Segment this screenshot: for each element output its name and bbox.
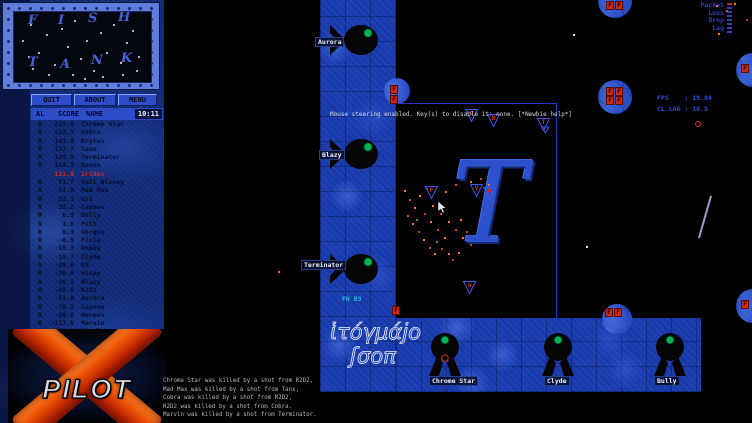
spark-dot xyxy=(404,190,406,192)
fish-base-clyde xyxy=(540,332,576,376)
spark-dot xyxy=(436,241,438,243)
packet-meter-gauge xyxy=(727,3,732,35)
kill-message: R2D2 was killed by a shot from Cobra. xyxy=(163,403,317,412)
enemy-ship: O xyxy=(482,186,497,201)
spark-dot xyxy=(716,5,718,7)
fuel-cell: F xyxy=(741,64,749,73)
spark-dot xyxy=(412,223,414,225)
enemy-ship-tag: n xyxy=(462,282,477,289)
fuel-cell: F xyxy=(390,95,398,104)
spark-dot xyxy=(414,207,416,209)
spark-dot xyxy=(586,246,588,248)
fuel-cell: F xyxy=(615,96,623,105)
spark-dot xyxy=(441,248,443,250)
spark-dot xyxy=(423,239,425,241)
spark-dot xyxy=(448,221,450,223)
spark-dot xyxy=(409,199,411,201)
fuel-cell: F xyxy=(741,300,749,309)
spark-dot xyxy=(424,213,426,215)
spark-dot xyxy=(430,221,432,223)
fuel-cell: F xyxy=(606,1,614,10)
spark-dot xyxy=(455,184,457,186)
red-ring-marker xyxy=(695,121,701,127)
decorative-script-line2: ʃσοπ xyxy=(350,344,396,368)
spark-dot xyxy=(470,244,472,246)
player-name-label: Blazy xyxy=(319,150,345,160)
xpilot-game-screen: FISHTANK QUIT ABOUT MENU AL SCORE NAME 1… xyxy=(0,0,752,423)
fuel-cell: F xyxy=(606,96,614,105)
spark-dot xyxy=(432,205,434,207)
spark-dot xyxy=(718,33,720,35)
fuel-cell: F xyxy=(606,87,614,96)
fuel-cell: F xyxy=(605,308,613,317)
spark-dot xyxy=(416,219,418,221)
map-letter-t: T xyxy=(452,148,527,260)
fuel-cell: F xyxy=(390,85,398,94)
kill-message-log: Chrome Star was killed by a shot from R2… xyxy=(163,377,317,420)
spark-dot xyxy=(445,191,447,193)
spark-dot xyxy=(444,237,446,239)
enemy-ship-tag: T xyxy=(536,119,551,126)
spark-dot xyxy=(573,34,575,36)
fuel-cell: F xyxy=(614,308,622,317)
enemy-ship-tag: O xyxy=(482,188,497,195)
player-name-label: Terminator xyxy=(301,260,346,270)
player-name-label: Chrome Star xyxy=(429,376,478,386)
player-name-label: Aurora xyxy=(315,37,344,47)
player-name-label: FN B3 xyxy=(342,295,362,303)
client-lag-readout: CL.LAG : 10.5 xyxy=(657,105,708,113)
map-boundary-line xyxy=(399,103,557,104)
spark-dot xyxy=(419,195,421,197)
spark-dot xyxy=(418,231,420,233)
lag-label: Lag xyxy=(676,25,724,33)
spark-dot xyxy=(437,229,439,231)
meter-tick xyxy=(727,19,732,21)
fish-base-bully xyxy=(652,332,688,376)
meter-tick xyxy=(727,23,732,25)
meter-tick xyxy=(727,7,732,9)
kill-message: Mad Max was killed by a shot from Tanx, xyxy=(163,386,317,395)
logo-pilot-text: PILOT xyxy=(14,374,160,405)
spark-dot xyxy=(462,237,464,239)
spark-dot xyxy=(278,271,280,273)
player-name-label: Clyde xyxy=(544,376,570,386)
meter-tick xyxy=(727,3,732,5)
spark-dot xyxy=(734,3,736,5)
spark-dot xyxy=(460,219,462,221)
enemy-ship-tag: F xyxy=(424,187,439,194)
spark-dot xyxy=(434,253,436,255)
kill-message: Marvin was killed by a shot from Termina… xyxy=(163,411,317,420)
play-area: T ἱτόγμάϳο ʃσοπ xyxy=(0,0,752,423)
fps-readout: FPS : 19.84 xyxy=(657,94,712,102)
game-message: Mouse steering enabled. Key(s) to disabl… xyxy=(330,111,572,118)
meter-tick xyxy=(727,27,732,29)
meter-tick xyxy=(727,31,732,33)
enemy-ship: F xyxy=(424,185,439,200)
mouse-cursor[interactable] xyxy=(437,201,447,214)
kill-message: Chrome Star was killed by a shot from R2… xyxy=(163,377,317,386)
enemy-ship: n xyxy=(462,280,477,295)
spark-dot xyxy=(480,178,482,180)
fuel-cell: F xyxy=(615,1,623,10)
spark-dot xyxy=(455,229,457,231)
map-boundary-line xyxy=(556,103,557,318)
spark-dot xyxy=(726,10,728,12)
spark-dot xyxy=(429,247,431,249)
meter-tick xyxy=(727,15,732,17)
fuel-cell: F xyxy=(392,306,400,315)
fuel-cell: F xyxy=(615,87,623,96)
spark-dot xyxy=(466,231,468,233)
player-name-label: Bully xyxy=(654,376,680,386)
spark-dot xyxy=(448,253,450,255)
enemy-ship: T xyxy=(536,117,551,132)
spark-dot xyxy=(407,215,409,217)
decorative-script-line1: ἱτόγμάϳο xyxy=(330,320,421,344)
fish-base-chrome-star xyxy=(427,332,463,376)
kill-message: Cobra was killed by a shot from R2D2, xyxy=(163,394,317,403)
spark-dot xyxy=(458,252,460,254)
debris-stick xyxy=(698,196,712,239)
spark-dot xyxy=(452,259,454,261)
spark-dot xyxy=(746,19,748,21)
